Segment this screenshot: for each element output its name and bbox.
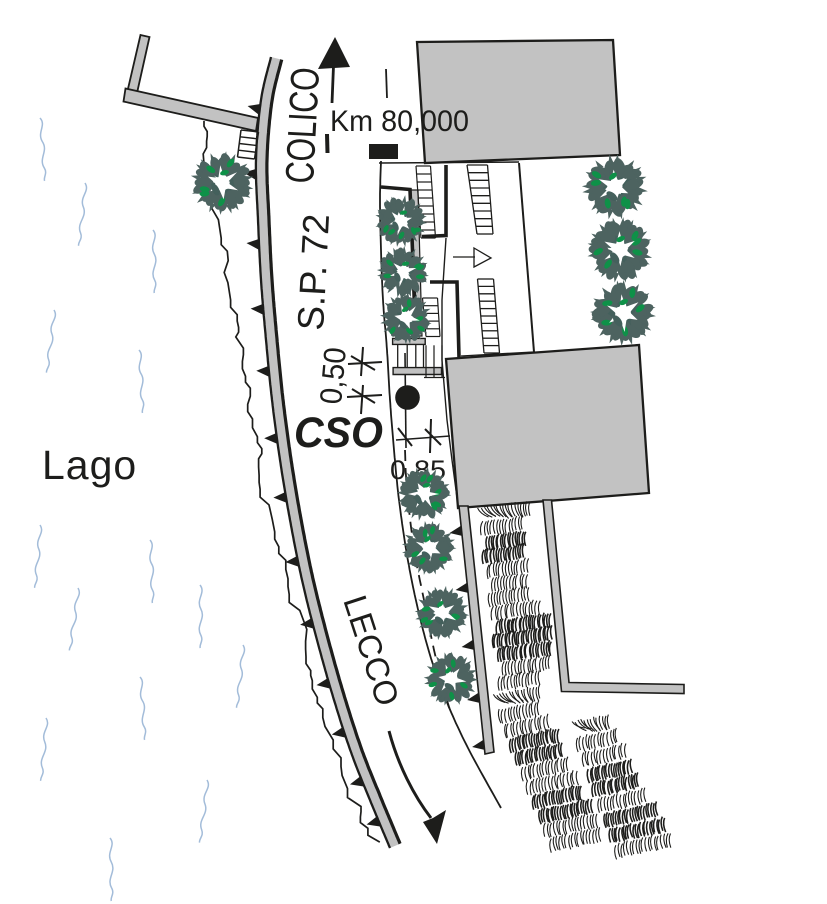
svg-text:S.P. 72: S.P. 72 — [290, 213, 337, 332]
svg-text:Lago: Lago — [42, 442, 137, 488]
svg-text:COLICO: COLICO — [278, 66, 328, 184]
svg-text:Km 80,000: Km 80,000 — [330, 105, 469, 138]
svg-text:CSO: CSO — [294, 409, 383, 457]
svg-text:0,50: 0,50 — [313, 346, 353, 406]
